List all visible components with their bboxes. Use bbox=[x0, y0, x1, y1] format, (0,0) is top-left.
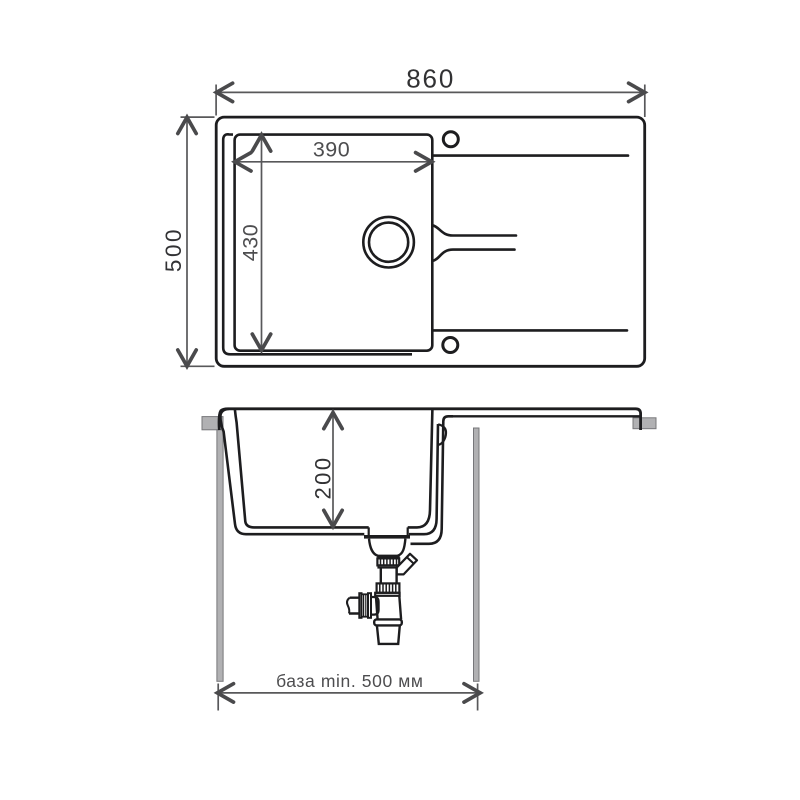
svg-text:430: 430 bbox=[239, 224, 263, 261]
svg-text:500: 500 bbox=[161, 227, 186, 272]
svg-text:860: 860 bbox=[406, 64, 455, 94]
svg-text:390: 390 bbox=[313, 138, 350, 162]
svg-text:база min. 500 мм: база min. 500 мм bbox=[276, 671, 423, 691]
svg-text:200: 200 bbox=[310, 456, 335, 500]
